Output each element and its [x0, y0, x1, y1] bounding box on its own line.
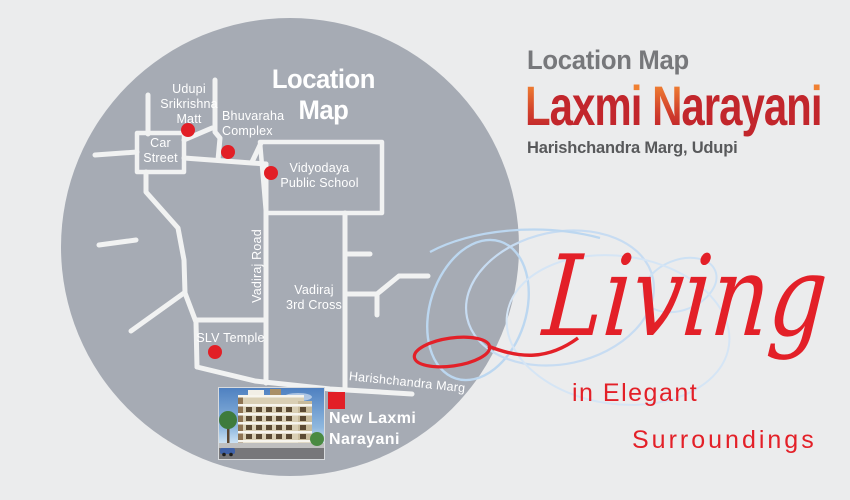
- bhuvaraha-complex-dot: [221, 145, 235, 159]
- brand-letter-segment: [641, 75, 652, 137]
- tagline-line3: Surroundings: [632, 426, 817, 455]
- brand-letter-segment: L: [525, 75, 550, 137]
- label-bhuvaraha-complex: Bhuvaraha Complex: [222, 109, 310, 139]
- panel-heading: Location Map: [527, 45, 689, 76]
- brand-letter-segment: i: [811, 75, 822, 137]
- tagline-script-living: Living: [540, 244, 831, 350]
- brand-address: Harishchandra Marg, Udupi: [527, 139, 737, 158]
- tagline-line2: in Elegant: [572, 379, 698, 408]
- label-new-laxmi-narayani: New Laxmi Narayani: [329, 409, 429, 451]
- label-car-street: Car Street: [137, 136, 184, 166]
- slv-temple-dot: [208, 345, 222, 359]
- label-vadiraj-3rd-cross: Vadiraj 3rd Cross: [282, 283, 346, 313]
- location-map-poster: Location Map Udupi Srikrishna Matt Bhuva…: [0, 0, 850, 500]
- brand-letter-segment: N: [652, 75, 681, 137]
- compound-wall: [218, 443, 325, 448]
- small-tree: [310, 432, 324, 446]
- brand-letter-segment: arayan: [681, 75, 810, 137]
- building-photo: [218, 387, 325, 460]
- label-vidyodaya-public-school: Vidyodaya Public School: [272, 161, 367, 191]
- brand-wordmark: Laxmi Narayani: [525, 79, 822, 134]
- label-vadiraj-road: Vadiraj Road: [250, 223, 264, 309]
- brand-letter-segment: axm: [550, 75, 631, 137]
- new-laxmi-narayani-square: [328, 392, 345, 409]
- brand-letter-segment: i: [631, 75, 642, 137]
- apartment-building: [238, 389, 312, 447]
- label-udupi-srikrishna-matt: Udupi Srikrishna Matt: [144, 82, 234, 126]
- label-slv-temple: SLV Temple: [193, 331, 268, 346]
